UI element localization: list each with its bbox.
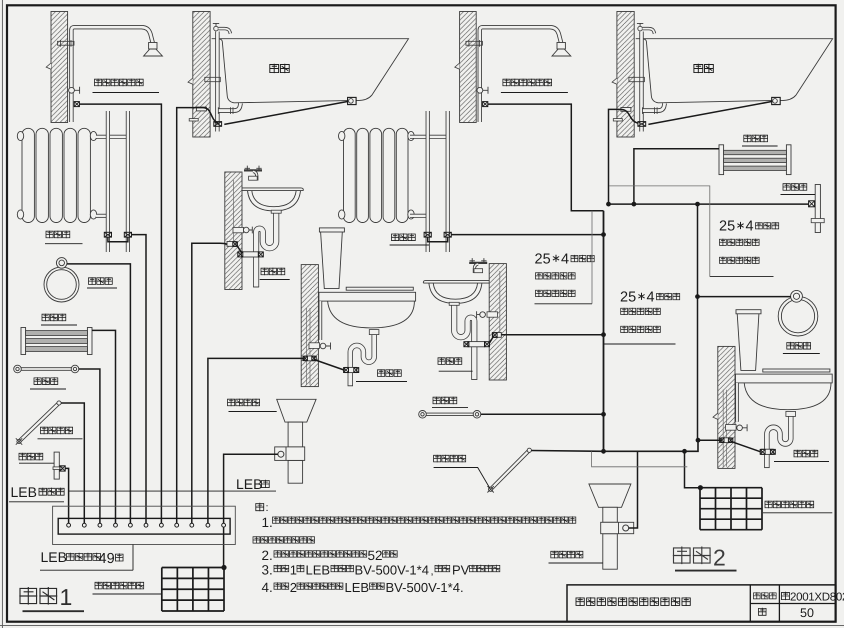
svg-text:4.: 4. [262,580,273,595]
svg-text::: : [266,502,269,514]
svg-text:2: 2 [713,545,726,571]
svg-text:PV: PV [452,563,470,578]
svg-text:BV-500V-1*4.: BV-500V-1*4. [386,580,464,595]
svg-text:4: 4 [647,290,655,306]
svg-text:,: , [431,566,434,578]
svg-text:1: 1 [60,584,73,610]
svg-text:BV-500V-1*4: BV-500V-1*4 [355,563,429,578]
svg-text:2.: 2. [262,548,273,563]
svg-text:2001XD802: 2001XD802 [790,592,844,604]
svg-text:3.: 3. [262,563,273,578]
svg-text:LEB: LEB [236,476,262,492]
svg-text:LEB: LEB [41,549,67,565]
svg-text:25: 25 [719,219,735,235]
svg-text:1.: 1. [262,515,273,530]
svg-text:25: 25 [620,290,636,306]
svg-text:25: 25 [535,252,551,268]
svg-text:52: 52 [368,548,383,563]
svg-text:LEB: LEB [345,580,370,595]
svg-text:2: 2 [290,580,297,595]
svg-text:LEB: LEB [11,484,37,500]
svg-text:4: 4 [561,252,569,268]
svg-text:49: 49 [99,551,115,567]
svg-text:1: 1 [290,563,297,578]
svg-text:50: 50 [800,606,814,620]
svg-text:LEB: LEB [306,563,331,578]
svg-text:4: 4 [746,219,754,235]
